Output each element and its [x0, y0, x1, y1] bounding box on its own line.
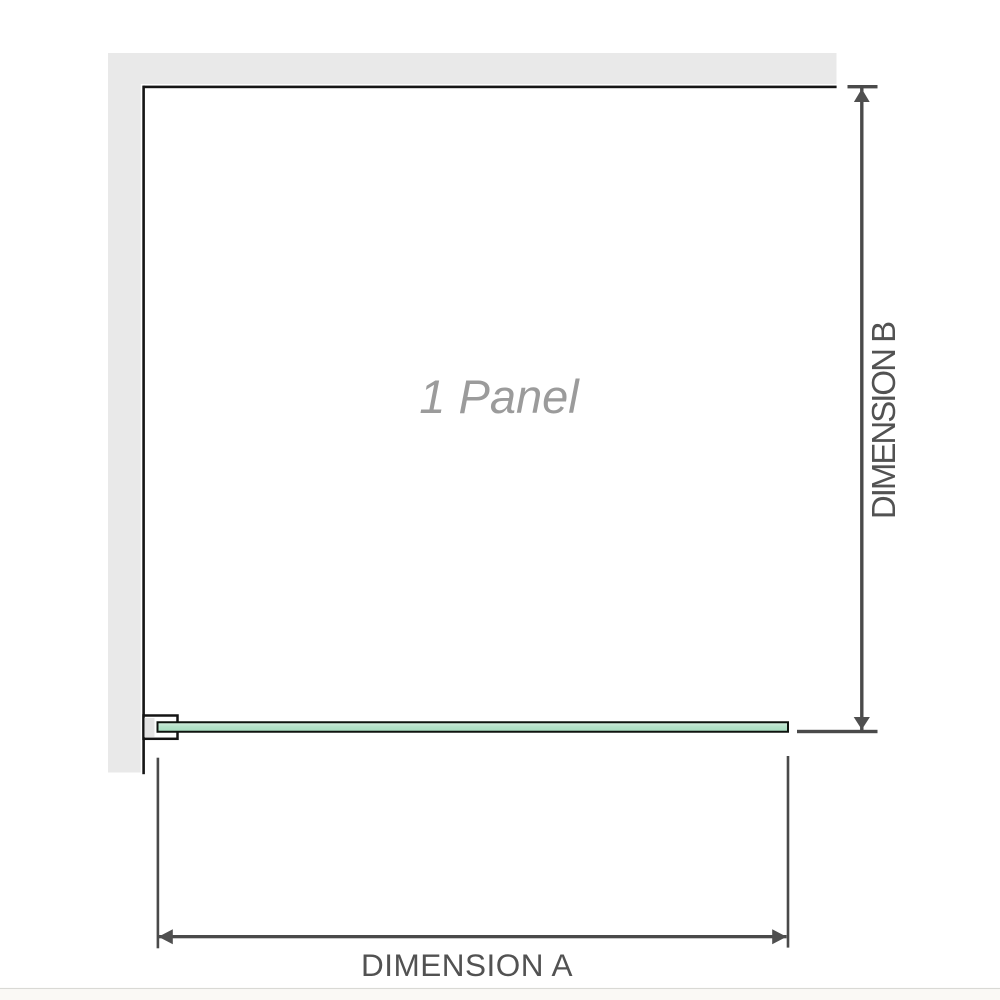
svg-text:1 Panel: 1 Panel	[419, 370, 580, 423]
svg-text:DIMENSION A: DIMENSION A	[361, 947, 573, 983]
svg-text:DIMENSION B: DIMENSION B	[865, 322, 902, 519]
